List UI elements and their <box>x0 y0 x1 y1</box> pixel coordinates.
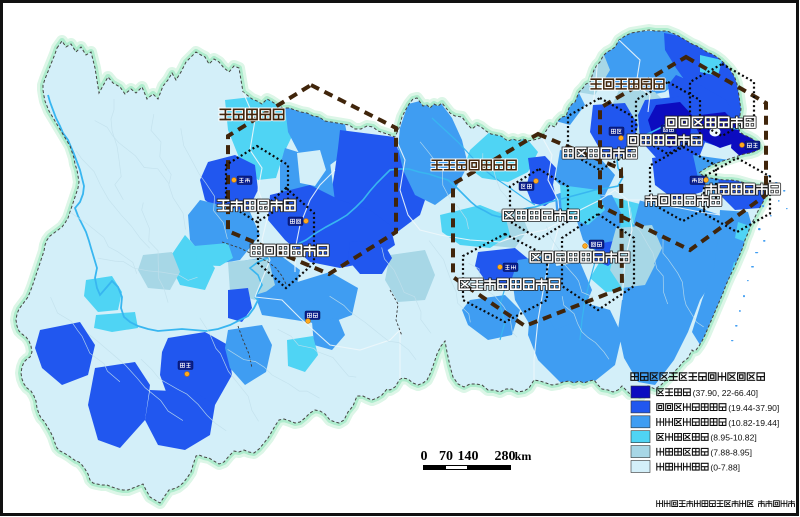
svg-text:0: 0 <box>421 449 428 464</box>
svg-text:(0-7.88]: (0-7.88] <box>710 463 740 473</box>
svg-text:(10.82-19.44]: (10.82-19.44] <box>728 418 779 428</box>
svg-text:280: 280 <box>495 449 516 464</box>
svg-text:(19.44-37.90]: (19.44-37.90] <box>728 403 779 413</box>
svg-text:km: km <box>515 449 532 463</box>
svg-text:(8.95-10.82]: (8.95-10.82] <box>710 433 756 443</box>
svg-text:(37.90, 22-66.40]: (37.90, 22-66.40] <box>693 388 758 398</box>
svg-text:(7.88-8.95]: (7.88-8.95] <box>710 448 752 458</box>
svg-text:70: 70 <box>439 449 453 464</box>
svg-text:140: 140 <box>458 449 479 464</box>
